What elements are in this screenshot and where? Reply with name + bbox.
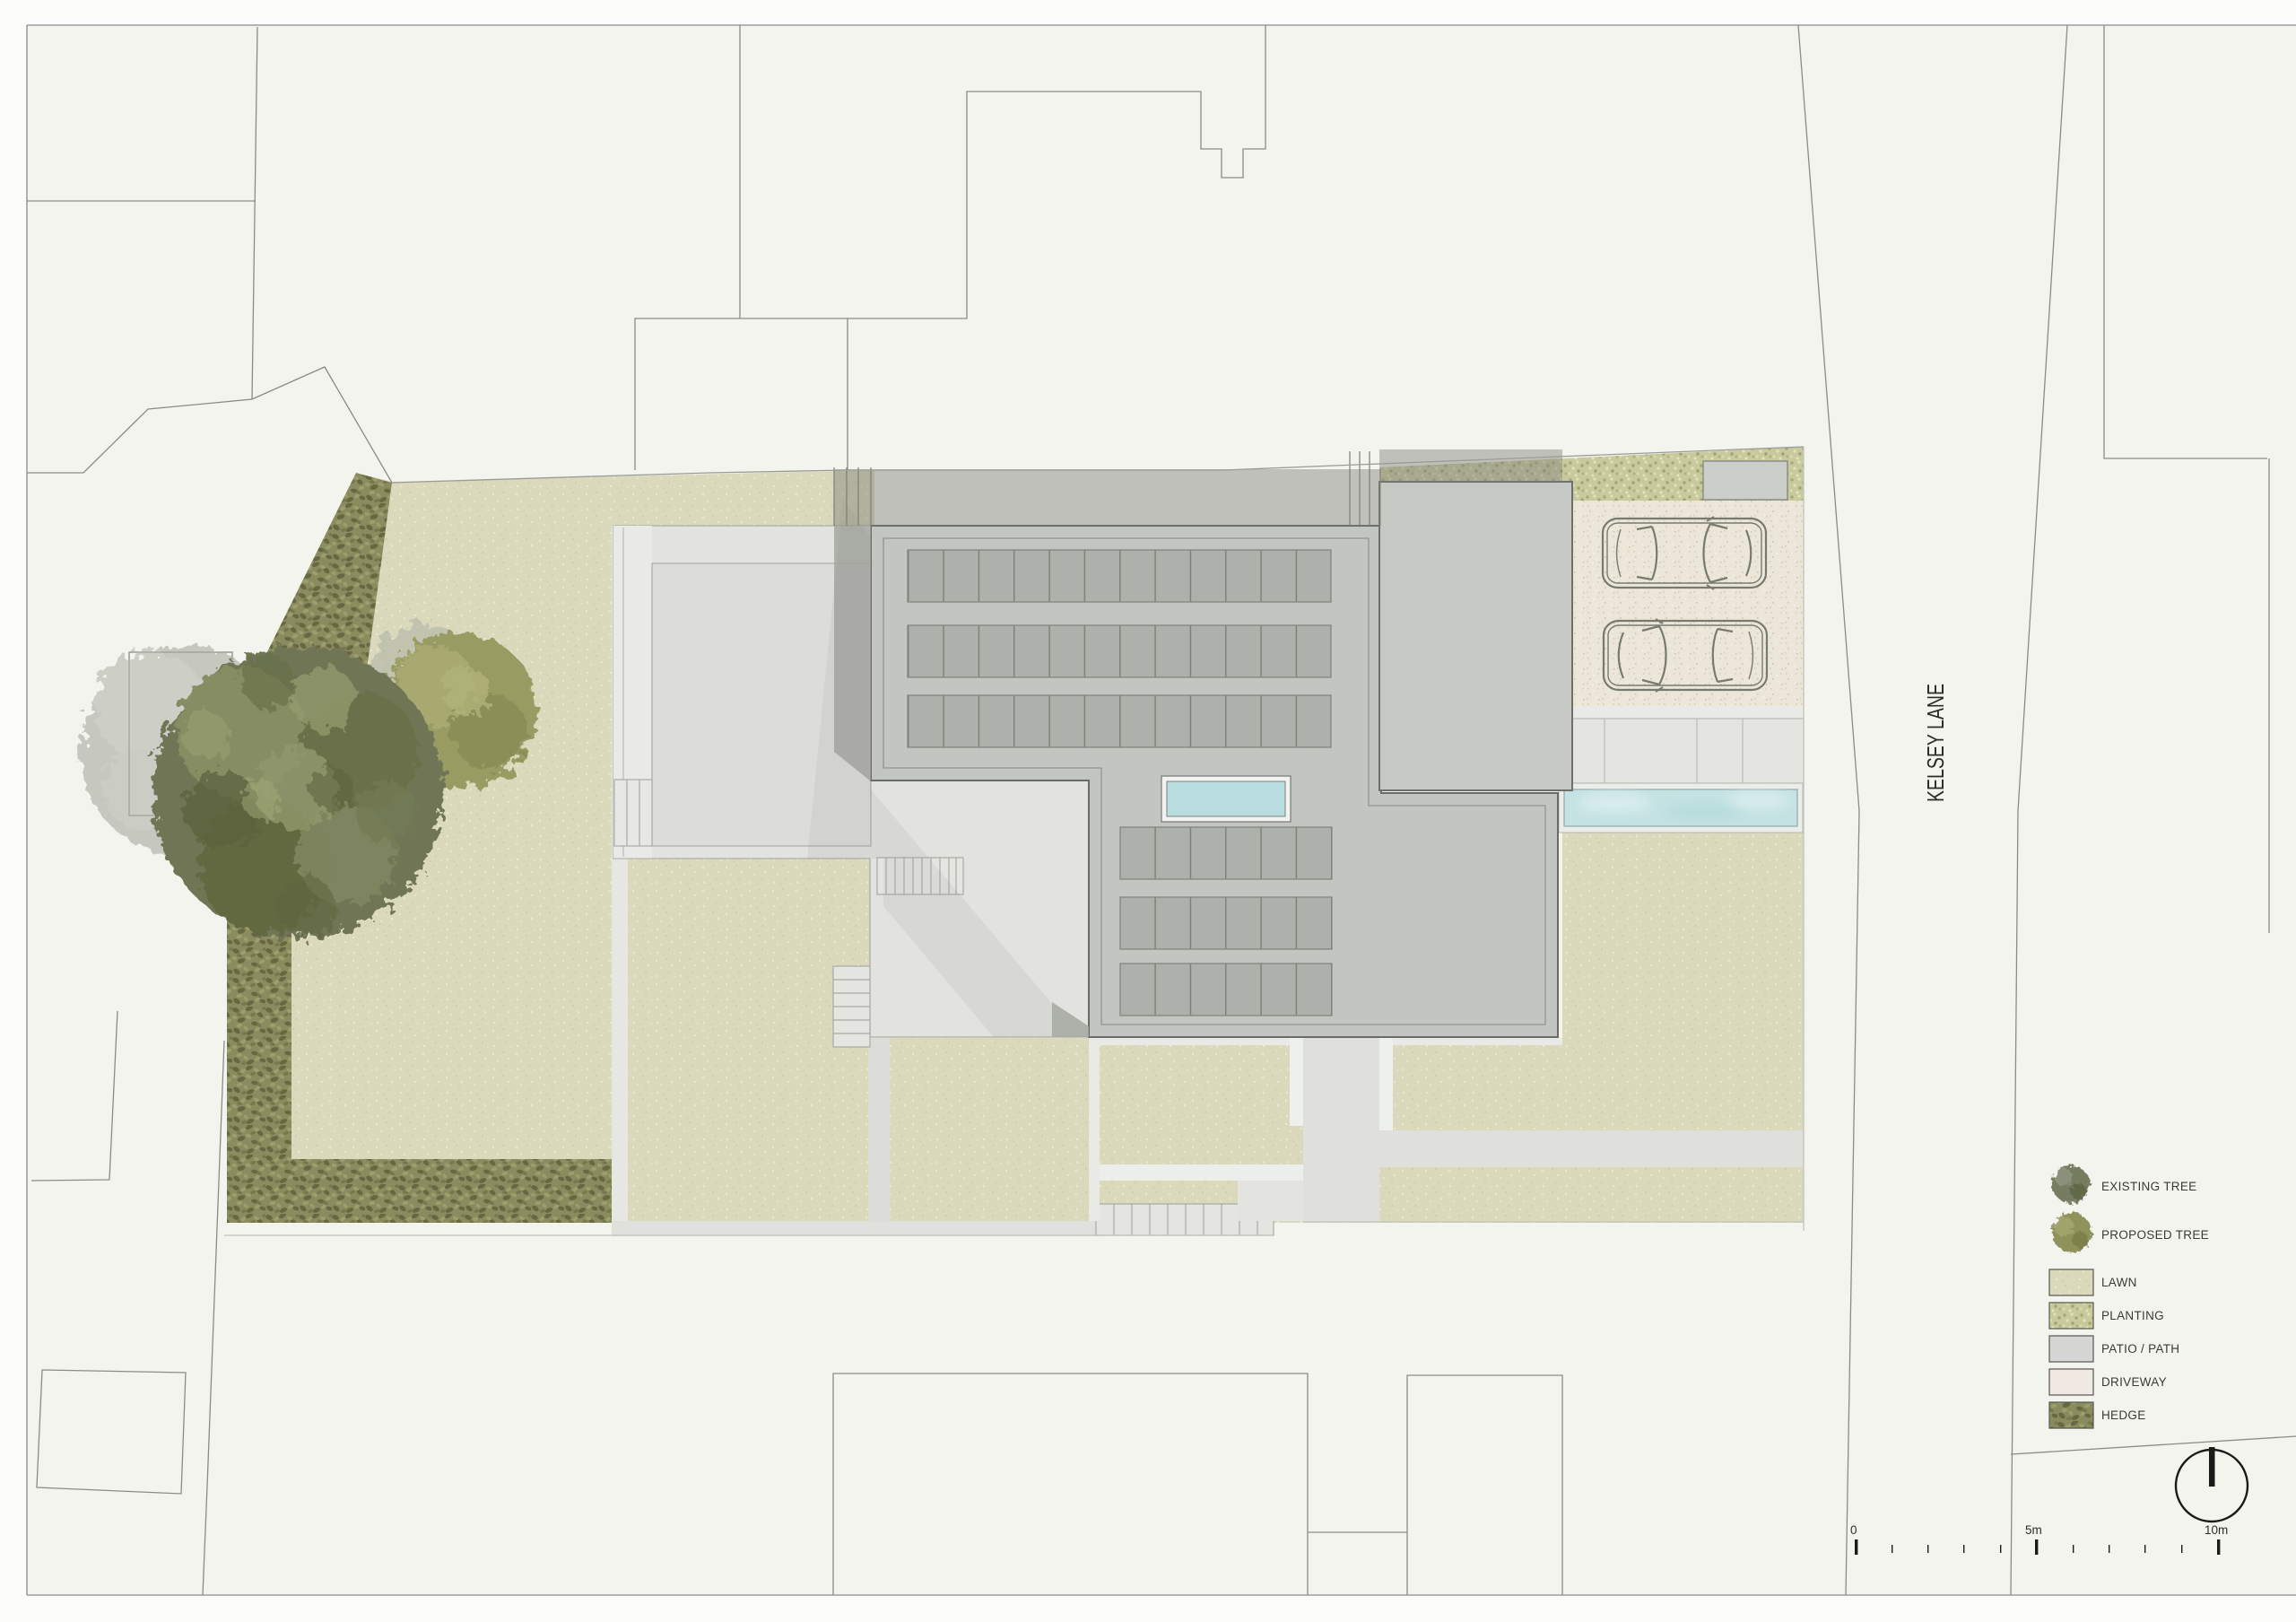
- svg-text:LAWN: LAWN: [2101, 1276, 2137, 1289]
- svg-text:PLANTING: PLANTING: [2101, 1309, 2164, 1322]
- svg-text:KELSEY LANE: KELSEY LANE: [1922, 684, 1949, 802]
- svg-text:PROPOSED TREE: PROPOSED TREE: [2101, 1228, 2209, 1242]
- svg-text:HEDGE: HEDGE: [2101, 1408, 2146, 1422]
- svg-text:0: 0: [1850, 1523, 1857, 1537]
- svg-text:DRIVEWAY: DRIVEWAY: [2101, 1375, 2167, 1389]
- svg-text:5m: 5m: [2025, 1523, 2042, 1537]
- svg-text:10m: 10m: [2205, 1523, 2228, 1537]
- svg-text:EXISTING TREE: EXISTING TREE: [2101, 1180, 2196, 1193]
- svg-text:PATIO / PATH: PATIO / PATH: [2101, 1342, 2179, 1356]
